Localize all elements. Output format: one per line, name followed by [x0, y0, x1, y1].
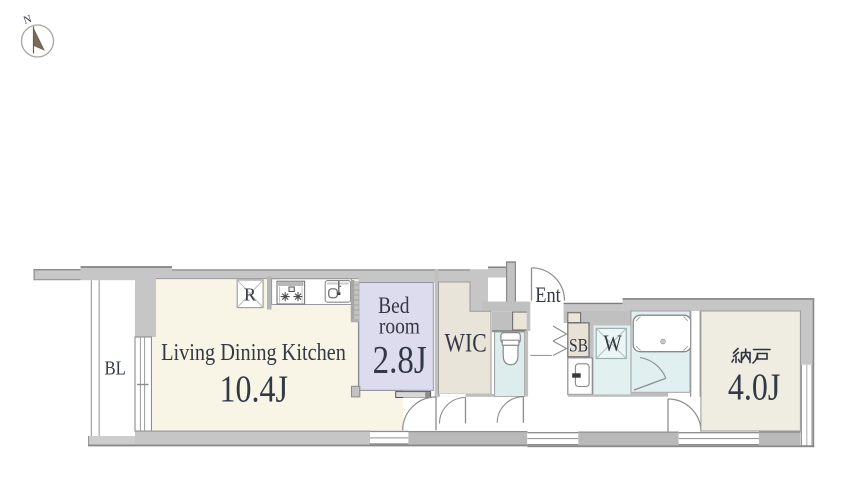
svg-text:room: room: [379, 313, 420, 339]
svg-text:WIC: WIC: [445, 330, 487, 358]
svg-text:R: R: [244, 285, 256, 305]
svg-text:Ent: Ent: [535, 284, 561, 308]
svg-text:2.8J: 2.8J: [373, 338, 427, 381]
svg-text:SB: SB: [569, 335, 588, 356]
svg-text:BL: BL: [105, 357, 126, 379]
svg-text:Living Dining Kitchen: Living Dining Kitchen: [161, 338, 346, 365]
svg-text:W: W: [603, 330, 622, 356]
svg-text:4.0J: 4.0J: [728, 366, 780, 408]
svg-text:10.4J: 10.4J: [219, 368, 287, 410]
